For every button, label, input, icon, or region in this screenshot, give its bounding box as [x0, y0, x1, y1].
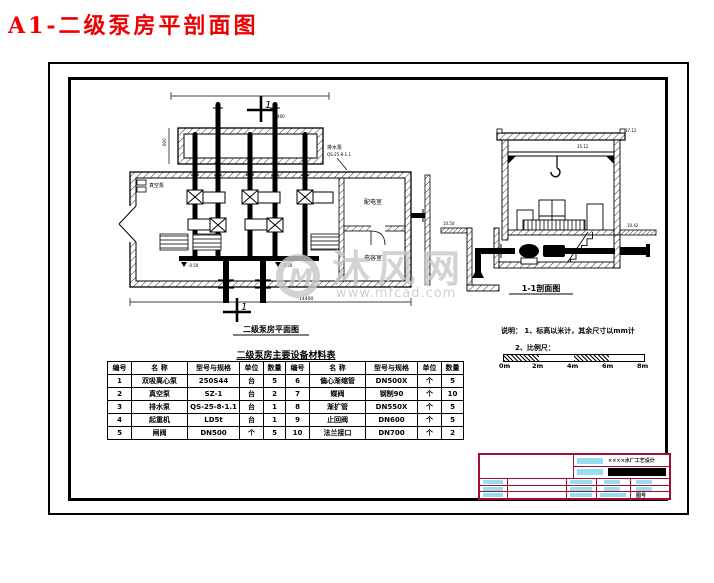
col-header: 编号	[108, 362, 132, 375]
drawing-no-label: 图号	[636, 492, 646, 499]
suction-channel: 600	[162, 128, 323, 164]
elev-crane: 35.12	[577, 144, 589, 149]
title-block-field	[636, 487, 652, 491]
title-block-divider	[507, 478, 508, 498]
title-block-field	[600, 493, 626, 497]
scale-tick: 2m	[532, 362, 543, 370]
scale-tick: 6m	[602, 362, 613, 370]
scale-bar-labels: 0m 2m 4m 6m 8m	[499, 362, 655, 371]
basement-floor	[499, 262, 620, 268]
title-block-divider	[573, 466, 669, 467]
page-title: A1-二级泵房平剖面图	[8, 8, 259, 40]
drain-pump-model: QS-25-8-1.1	[327, 152, 351, 157]
title-block-field	[604, 487, 620, 491]
scale-segment	[504, 355, 539, 361]
col-header: 单位	[418, 362, 442, 375]
scale-tick: 0m	[499, 362, 510, 370]
redacted-text-bar	[608, 468, 666, 476]
title-block-divider	[596, 478, 597, 498]
col-header: 单位	[240, 362, 264, 375]
crane-hook-icon	[551, 168, 560, 177]
right-stub-pipe	[411, 209, 425, 222]
title-block-field	[570, 480, 592, 484]
ground-floor-slab	[508, 230, 614, 235]
drain-pump-callout: 排水泵 QS-25-8-1.1	[327, 144, 351, 170]
table-row: 3排水泵 QS-25-8-1.1台 18 渐扩管DN550X 个5	[108, 401, 464, 414]
col-header: 名 称	[132, 362, 188, 375]
title-block-field	[570, 487, 592, 491]
watermark-site-name: 沐风网	[332, 238, 467, 293]
title-block-divider	[566, 478, 567, 498]
crane-beam	[508, 152, 614, 177]
col-header: 型号与规格	[188, 362, 240, 375]
col-header: 编号	[286, 362, 310, 375]
title-block-field	[483, 493, 503, 497]
room-upper-label: 配电室	[364, 198, 382, 206]
table-row: 5闸阀 DN500个 510 法兰接口DN700 个2	[108, 427, 464, 440]
table-row: 4起重机 LD5t台 19 止回阀DN600 个5	[108, 414, 464, 427]
elev-ground-right: 10.42	[627, 223, 639, 228]
title-block-divider	[480, 478, 669, 479]
watermark: M 沐风网 www.mfcad.com	[276, 246, 506, 310]
col-header: 名 称	[310, 362, 366, 375]
table-row: 1双吸离心泵 250S44台 56 偏心渐缩管DN500X 个5	[108, 375, 464, 388]
vacuum-pump-label: 真空泵	[149, 182, 164, 189]
note-line-2: 2、比例尺：	[515, 343, 665, 353]
scale-bar	[503, 354, 645, 362]
title-block-field	[483, 487, 503, 491]
drain-pump-label: 排水泵	[327, 144, 342, 151]
title-block-field	[636, 480, 652, 484]
project-name: ××××水厂工艺设计	[608, 457, 668, 464]
mfcad-logo-icon: M	[276, 254, 320, 298]
channel-width-dim: 600	[162, 138, 167, 146]
watermark-site-url: www.mfcad.com	[336, 286, 456, 301]
drawing-sheet: 1 14400 600	[68, 77, 668, 501]
elev-ground-left: 10.50	[443, 221, 455, 226]
scale-tick: 8m	[637, 362, 648, 370]
cad-screenshot-page: A1-二级泵房平剖面图	[0, 0, 714, 583]
section-right-wall	[614, 140, 620, 235]
section-left-wall	[502, 140, 508, 240]
section-equipment	[517, 200, 603, 232]
title-block-field	[570, 493, 592, 497]
logo-letter: M	[289, 264, 313, 292]
elev-roof: 37.12	[625, 128, 637, 133]
section-marker-bottom-label: 1	[241, 302, 247, 313]
title-block: ××××水厂工艺设计 图号	[478, 453, 671, 500]
col-header: 数量	[264, 362, 286, 375]
table-row: 2真空泵 SZ-1台 27 蝶阀钢制90 个10	[108, 388, 464, 401]
table-header-row: 编号 名 称 型号与规格 单位 数量 编号 名 称 型号与规格 单位 数量	[108, 362, 464, 375]
scale-segment	[609, 355, 644, 361]
scale-tick: 4m	[567, 362, 578, 370]
scale-segment	[574, 355, 609, 361]
plan-caption: 二级泵房平面图	[243, 324, 299, 334]
col-header: 型号与规格	[366, 362, 418, 375]
roof-slab	[497, 133, 625, 140]
section-marker-top-label: 1	[265, 100, 271, 111]
title-block-divider	[630, 478, 631, 498]
title-block-field	[604, 480, 620, 484]
section-cut-marker-top: 1 14400	[247, 96, 285, 122]
notes-block: 说明： 1、标高以米计，其余尺寸以mm计 2、比例尺：	[501, 326, 665, 353]
col-header: 数量	[442, 362, 464, 375]
materials-table-title: 二级泵房主要设备材料表	[107, 348, 465, 361]
scale-segment	[539, 355, 574, 361]
note-line-1: 说明： 1、标高以米计，其余尺寸以mm计	[501, 326, 665, 336]
title-block-field	[577, 458, 603, 464]
title-block-field	[483, 480, 503, 484]
floor-elev-left: -0.50	[188, 263, 199, 268]
section-caption: 1-1剖面图	[522, 283, 560, 293]
title-block-field	[577, 469, 603, 475]
materials-table: 编号 名 称 型号与规格 单位 数量 编号 名 称 型号与规格 单位 数量 1双…	[107, 361, 464, 440]
